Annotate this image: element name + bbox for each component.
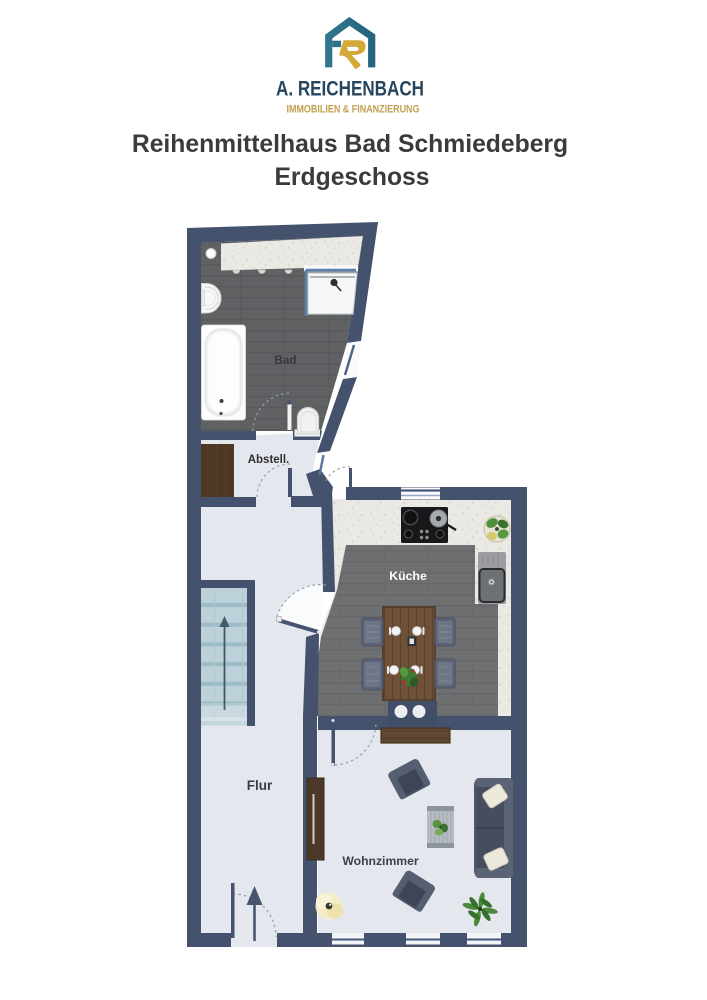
svg-text:Bad: Bad [274,353,296,367]
svg-text:Abstell.: Abstell. [248,454,290,466]
svg-text:Küche: Küche [389,569,427,583]
svg-text:Wohnzimmer: Wohnzimmer [342,854,419,868]
svg-text:A. REICHENBACH: A. REICHENBACH [276,78,424,101]
svg-text:Flur: Flur [247,778,273,793]
svg-text:IMMOBILIEN & FINANZIERUNG: IMMOBILIEN & FINANZIERUNG [287,104,420,116]
